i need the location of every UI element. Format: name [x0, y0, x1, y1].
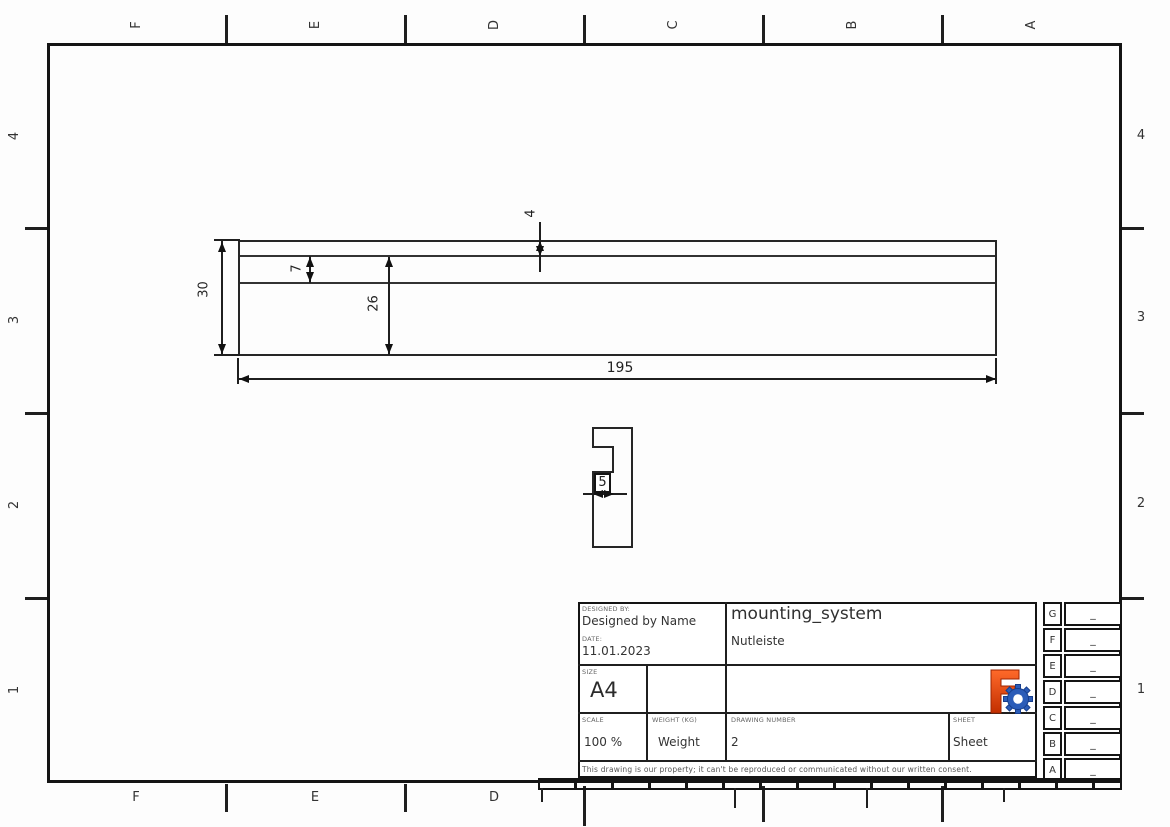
zone-tick	[941, 15, 944, 43]
dim-arrow	[986, 375, 996, 383]
date-value: 11.01.2023	[582, 644, 651, 658]
dim-arrow	[306, 272, 314, 282]
dim-text-groove: 7	[290, 259, 305, 279]
drawing-sheet: F E D C B A F E D 4 3 2 1 4 3 2 1 30 7 2…	[0, 0, 1170, 827]
revision-entry-cell: _	[1064, 732, 1122, 756]
sheet-value: Sheet	[953, 735, 988, 749]
revision-entry-cell: _	[1064, 654, 1122, 678]
zone-tick	[225, 15, 228, 43]
dim-line-lower	[388, 257, 390, 355]
zone-label-left-1: 1	[7, 680, 23, 700]
zone-label-bottom-e: E	[305, 790, 325, 806]
zone-label-left-2: 2	[7, 495, 23, 515]
side-view-outline	[238, 240, 997, 356]
title-block-divider	[646, 666, 648, 762]
zone-tick	[25, 597, 47, 600]
dim-arrow	[218, 344, 226, 354]
ruler-tick	[734, 788, 736, 808]
revision-entry-cell: _	[1064, 706, 1122, 730]
scale-value: 100 %	[584, 735, 622, 749]
zone-label-right-2: 2	[1131, 496, 1151, 512]
zone-label-right-3: 3	[1131, 310, 1151, 326]
dim-arrow	[239, 375, 249, 383]
weight-label: WEIGHT (KG)	[652, 716, 697, 724]
extension-line	[214, 354, 240, 356]
zone-tick	[404, 15, 407, 43]
dim-line-height	[221, 241, 223, 355]
drawing-number-label: DRAWING NUMBER	[731, 716, 796, 724]
revision-zone-cell: B	[1043, 732, 1062, 756]
designed-by-label: DESIGNED BY:	[582, 605, 630, 613]
extension-line	[214, 239, 240, 241]
dim-text-length: 195	[590, 360, 650, 376]
side-view-edge-line-11mm	[240, 282, 995, 284]
zone-tick	[1122, 597, 1144, 600]
revision-zone-cell: E	[1043, 654, 1062, 678]
zone-tick	[762, 15, 765, 43]
size-label: SIZE	[582, 668, 597, 676]
zone-tick	[1122, 412, 1144, 415]
revision-zone-cell: F	[1043, 628, 1062, 652]
zone-tick	[583, 786, 586, 826]
section-view-outline	[583, 418, 647, 558]
date-label: DATE:	[582, 635, 602, 643]
zone-label-left-4: 4	[7, 126, 23, 146]
revision-entry-cell: _	[1064, 602, 1122, 626]
zone-tick	[225, 784, 228, 812]
zone-label-top-b: B	[845, 15, 861, 35]
sheet-label: SHEET	[953, 716, 975, 724]
zone-label-top-d: D	[487, 15, 503, 35]
drawing-subtitle: Nutleiste	[731, 634, 785, 648]
ruler-tick	[866, 788, 868, 808]
dim-text-height: 30	[197, 275, 212, 305]
side-view-edge-line-4mm	[240, 255, 995, 257]
dim-arrow	[306, 257, 314, 267]
dim-arrow	[604, 490, 614, 498]
revision-zone-cell: G	[1043, 602, 1062, 626]
zone-label-left-3: 3	[7, 310, 23, 330]
dim-arrow	[385, 344, 393, 354]
zone-tick	[25, 412, 47, 415]
zone-label-right-1: 1	[1131, 682, 1151, 698]
zone-tick	[583, 15, 586, 43]
weight-value: Weight	[658, 735, 700, 749]
scale-ruler	[538, 778, 1122, 790]
ruler-tick	[541, 788, 543, 802]
dim-arrow	[218, 242, 226, 252]
revision-zone-cell: C	[1043, 706, 1062, 730]
size-value: A4	[590, 678, 618, 702]
revision-entry-cell: _	[1064, 628, 1122, 652]
revision-entry-cell: _	[1064, 680, 1122, 704]
freecad-logo-icon	[984, 667, 1037, 717]
zone-label-top-e: E	[308, 15, 324, 35]
revision-zone-cell: D	[1043, 680, 1062, 704]
designed-by-value: Designed by Name	[582, 614, 696, 628]
drawing-title: mounting_system	[731, 604, 882, 624]
zone-tick	[1122, 227, 1144, 230]
zone-label-top-f: F	[129, 15, 145, 35]
dim-arrow	[593, 490, 603, 498]
ruler-tick	[1003, 788, 1005, 802]
drawing-number-value: 2	[731, 735, 739, 749]
scale-label: SCALE	[582, 716, 604, 724]
disclaimer-text: This drawing is our property; it can't b…	[582, 765, 972, 774]
dim-arrow	[385, 257, 393, 267]
title-block-divider	[948, 714, 950, 762]
zone-tick	[762, 786, 765, 822]
zone-tick	[941, 786, 944, 822]
dim-text-lower: 26	[367, 289, 382, 319]
dim-arrow	[536, 246, 544, 256]
zone-tick	[404, 784, 407, 812]
zone-label-top-a: A	[1024, 15, 1040, 35]
zone-label-right-4: 4	[1131, 128, 1151, 144]
zone-label-bottom-f: F	[126, 790, 146, 806]
zone-label-top-c: C	[666, 15, 682, 35]
logo-gear-shape	[1004, 685, 1033, 714]
title-block-divider	[725, 602, 727, 762]
dim-text-lip: 4	[524, 204, 539, 224]
zone-label-bottom-d: D	[484, 790, 504, 806]
dim-line-length	[238, 378, 996, 380]
zone-tick	[25, 227, 47, 230]
